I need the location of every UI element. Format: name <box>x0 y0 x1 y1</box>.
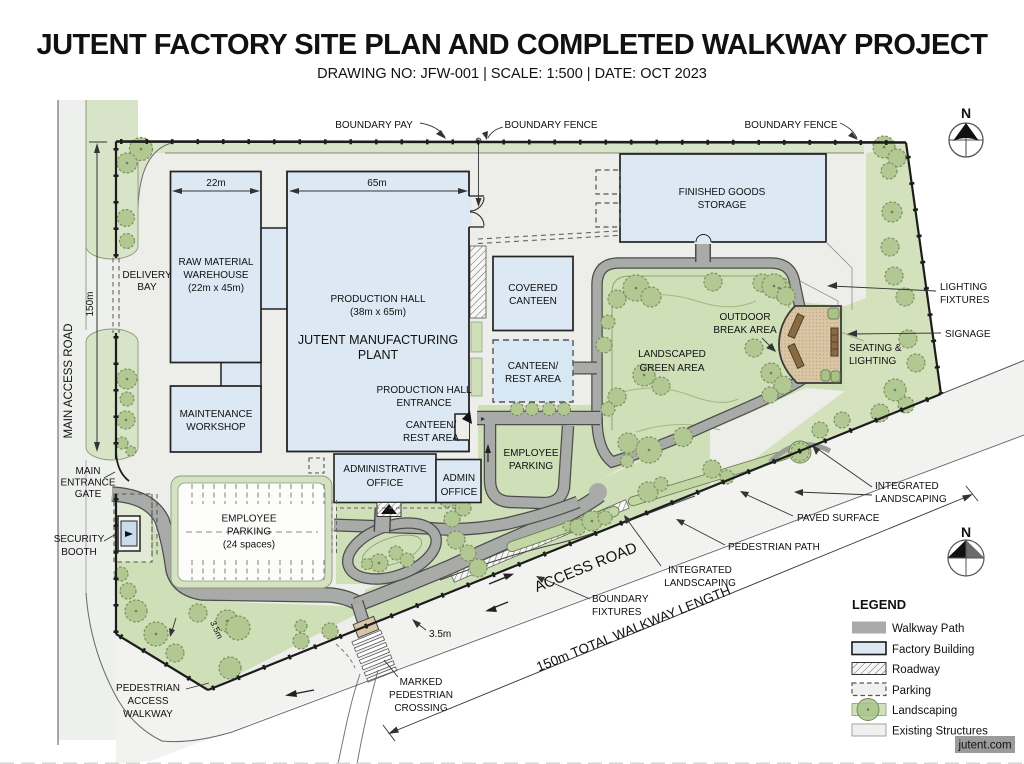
svg-text:LANDSCAPED: LANDSCAPED <box>638 349 706 360</box>
svg-text:INTEGRATED: INTEGRATED <box>875 481 939 492</box>
svg-text:CANTEEN: CANTEEN <box>509 296 557 307</box>
svg-text:REST AREA: REST AREA <box>505 374 561 385</box>
svg-text:(22m x 45m): (22m x 45m) <box>188 283 244 294</box>
svg-text:PEDESTRIAN: PEDESTRIAN <box>116 683 180 694</box>
svg-text:150m: 150m <box>85 291 96 316</box>
svg-text:N: N <box>961 524 971 540</box>
svg-text:SECURITY: SECURITY <box>54 534 105 545</box>
svg-text:WORKSHOP: WORKSHOP <box>186 422 246 433</box>
svg-text:ENTRANCE: ENTRANCE <box>60 478 115 489</box>
svg-text:ACCESS: ACCESS <box>127 696 168 707</box>
svg-text:WALKWAY: WALKWAY <box>123 709 173 720</box>
svg-text:JUTENT FACTORY SITE PLAN AND C: JUTENT FACTORY SITE PLAN AND COMPLETED W… <box>36 29 988 61</box>
svg-text:PARKING: PARKING <box>509 461 553 472</box>
svg-text:LANDSCAPING: LANDSCAPING <box>875 494 947 505</box>
svg-text:GREEN AREA: GREEN AREA <box>639 363 704 374</box>
svg-text:DELIVERY: DELIVERY <box>122 270 172 281</box>
svg-text:Factory Building: Factory Building <box>892 644 974 656</box>
svg-text:FIXTURES: FIXTURES <box>592 607 642 618</box>
svg-text:(24 spaces): (24 spaces) <box>223 540 275 551</box>
svg-text:JUTENT MANUFACTURING: JUTENT MANUFACTURING <box>298 333 458 347</box>
svg-text:(38m x 65m): (38m x 65m) <box>350 307 406 318</box>
svg-text:Roadway: Roadway <box>892 664 940 676</box>
svg-text:RAW MATERIAL: RAW MATERIAL <box>178 257 253 268</box>
svg-text:DRAWING NO: JFW-001 | SCALE: 1: DRAWING NO: JFW-001 | SCALE: 1:500 | DAT… <box>317 66 707 82</box>
svg-text:EMPLOYEE: EMPLOYEE <box>221 514 276 525</box>
svg-text:STORAGE: STORAGE <box>698 200 747 211</box>
svg-text:BOUNDARY FENCE: BOUNDARY FENCE <box>505 120 598 131</box>
svg-text:BREAK AREA: BREAK AREA <box>713 325 777 336</box>
svg-text:Existing Structures: Existing Structures <box>892 726 988 738</box>
svg-text:ADMIN: ADMIN <box>443 473 475 484</box>
svg-text:PRODUCTION HALL: PRODUCTION HALL <box>376 385 471 396</box>
svg-text:22m: 22m <box>206 178 225 189</box>
svg-text:PRODUCTION HALL: PRODUCTION HALL <box>330 294 425 305</box>
svg-text:OFFICE: OFFICE <box>367 478 404 489</box>
svg-text:MARKED: MARKED <box>400 677 443 688</box>
svg-text:INTEGRATED: INTEGRATED <box>668 565 732 576</box>
svg-text:3.5m: 3.5m <box>429 629 451 640</box>
svg-text:EMPLOYEE: EMPLOYEE <box>503 448 558 459</box>
svg-text:SIGNAGE: SIGNAGE <box>945 329 991 340</box>
svg-text:FIXTURES: FIXTURES <box>940 295 990 306</box>
svg-text:PLANT: PLANT <box>358 348 399 362</box>
svg-text:CANTEEN/: CANTEEN/ <box>508 361 559 372</box>
svg-text:PEDESTRIAN PATH: PEDESTRIAN PATH <box>728 542 820 553</box>
svg-text:OFFICE: OFFICE <box>441 487 478 498</box>
svg-text:PAVED SURFACE: PAVED SURFACE <box>797 513 880 524</box>
svg-text:SEATING &: SEATING & <box>849 343 902 354</box>
svg-text:ADMINISTRATIVE: ADMINISTRATIVE <box>343 464 426 475</box>
svg-text:PARKING: PARKING <box>227 527 271 538</box>
svg-text:65m: 65m <box>367 178 386 189</box>
svg-text:Landscaping: Landscaping <box>892 705 957 717</box>
svg-text:PEDESTRIAN: PEDESTRIAN <box>389 690 453 701</box>
svg-text:OUTDOOR: OUTDOOR <box>719 312 770 323</box>
svg-text:MAIN: MAIN <box>76 466 101 477</box>
svg-text:FINISHED GOODS: FINISHED GOODS <box>679 187 766 198</box>
svg-text:BOUNDARY: BOUNDARY <box>592 594 649 605</box>
svg-text:COVERED: COVERED <box>508 283 557 294</box>
svg-text:REST AREA: REST AREA <box>403 433 459 444</box>
svg-text:BOOTH: BOOTH <box>61 547 97 558</box>
svg-text:MAIN ACCESS ROAD: MAIN ACCESS ROAD <box>63 323 75 438</box>
svg-text:BOUNDARY FENCE: BOUNDARY FENCE <box>745 120 838 131</box>
svg-text:jutent.com: jutent.com <box>957 740 1011 752</box>
svg-text:BAY: BAY <box>137 282 157 293</box>
svg-text:BOUNDARY PAY: BOUNDARY PAY <box>335 120 413 131</box>
svg-text:MAINTENANCE: MAINTENANCE <box>180 409 253 420</box>
svg-text:GATE: GATE <box>75 489 102 500</box>
svg-text:LEGEND: LEGEND <box>852 597 906 612</box>
svg-text:CANTEEN/: CANTEEN/ <box>406 420 457 431</box>
svg-text:WAREHOUSE: WAREHOUSE <box>183 270 249 281</box>
svg-text:LIGHTING: LIGHTING <box>849 356 896 367</box>
svg-text:Walkway Path: Walkway Path <box>892 623 964 635</box>
svg-text:N: N <box>961 105 971 121</box>
svg-text:LIGHTING: LIGHTING <box>940 282 987 293</box>
svg-text:CROSSING: CROSSING <box>394 703 448 714</box>
svg-text:Parking: Parking <box>892 685 931 697</box>
svg-text:ENTRANCE: ENTRANCE <box>396 398 451 409</box>
